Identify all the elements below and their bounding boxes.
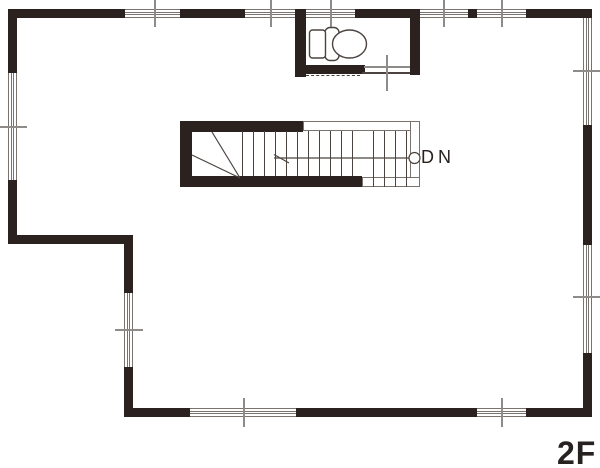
window-center-tick (154, 0, 156, 27)
window-center-tick (270, 0, 272, 27)
toilet-bowl (333, 30, 367, 58)
stair-rail-top (303, 121, 420, 131)
wall-bottom-1 (124, 408, 190, 417)
wall-bottom-2 (296, 408, 477, 417)
stair-step-line (253, 131, 254, 176)
wall-jog-vertical-1 (124, 235, 133, 293)
floor-label: 2F (557, 440, 596, 466)
window-center-tick (0, 126, 27, 128)
wall-top-pier (468, 9, 477, 18)
window-right-2 (583, 245, 592, 353)
window-center-tick (573, 70, 600, 72)
stair-direction-label: DN (421, 149, 455, 165)
stair-step-line (308, 131, 309, 176)
stair-down-arrow-icon (274, 153, 420, 164)
stair-step-line (352, 131, 353, 176)
window-center-tick (115, 329, 143, 331)
wall-top-4 (526, 9, 592, 18)
stair-rail-bottom (362, 177, 420, 187)
stair-wall-bottom (180, 176, 362, 187)
toilet-tank (310, 30, 326, 58)
wall-right-2 (583, 353, 592, 417)
stair-step-line (297, 131, 298, 176)
stair-step-line (373, 131, 374, 187)
wc-door-tick (386, 55, 388, 91)
stair-step-line (406, 131, 407, 187)
wc-door-dashed-line (306, 75, 360, 76)
wall-right-1 (583, 125, 592, 245)
stair-step-line (286, 131, 287, 176)
stair-step-line (319, 131, 320, 176)
window-center-tick (501, 398, 503, 427)
stair-step-line (395, 131, 396, 187)
window-right-1 (583, 18, 592, 125)
wall-wc-right (410, 9, 420, 75)
stair-step-line (242, 131, 243, 176)
toilet-lid (325, 28, 339, 61)
window-center-tick (573, 296, 600, 298)
floorplan-canvas: DN 2F (0, 0, 600, 468)
stair-step-line (330, 131, 331, 176)
stair-step-line (264, 131, 265, 176)
window-center-tick (443, 0, 445, 27)
window-center-tick (330, 0, 332, 27)
stair-winder-lines (192, 132, 240, 178)
stair-step-line (275, 131, 276, 176)
wall-jog-horizontal (8, 235, 133, 244)
stair-step-line (341, 131, 342, 176)
window-center-tick (243, 398, 245, 427)
window-top-1 (125, 9, 180, 18)
wall-top-2 (180, 9, 245, 18)
wall-top-1 (8, 9, 125, 18)
window-center-tick (501, 0, 503, 27)
stair-step-line (384, 131, 385, 187)
wall-left-1 (8, 9, 17, 73)
wall-wc-bottom (295, 65, 365, 74)
toilet-icon (310, 28, 367, 61)
